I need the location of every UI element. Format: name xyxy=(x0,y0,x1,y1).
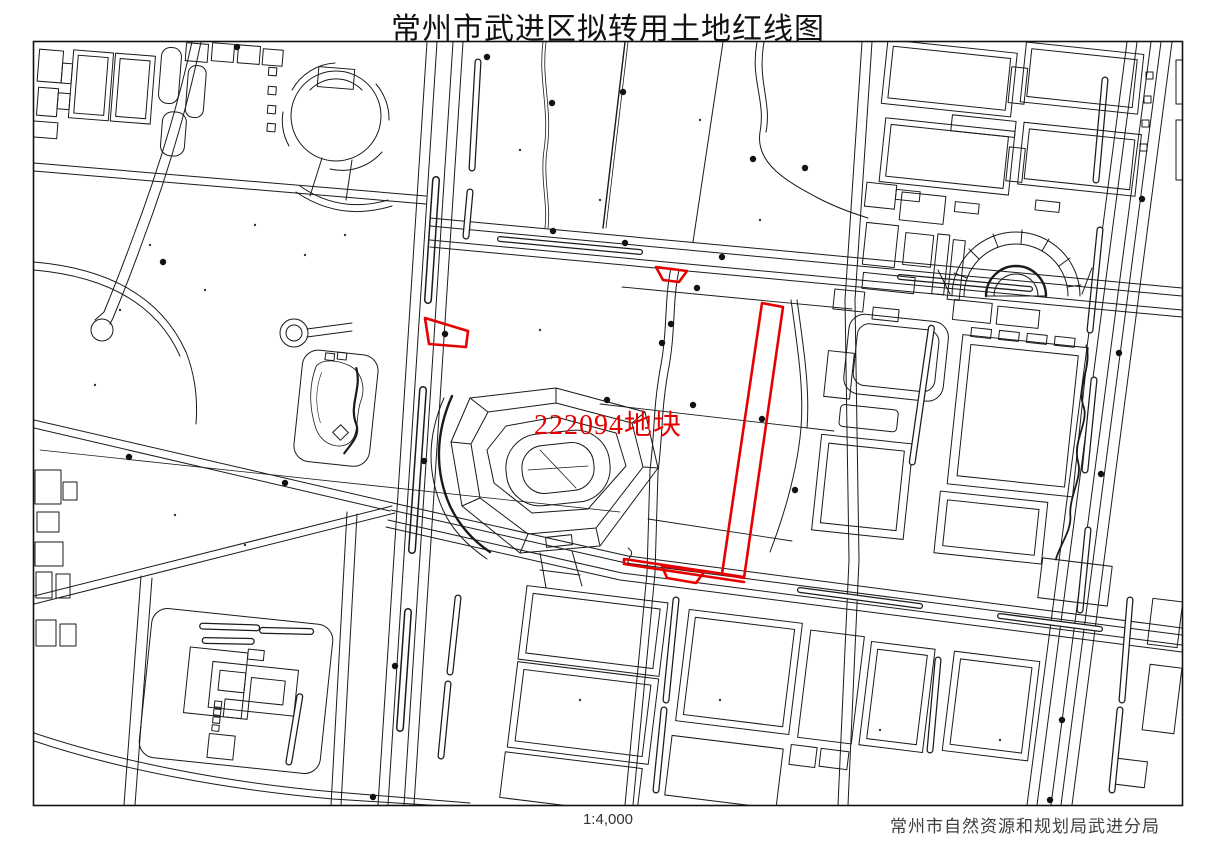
circular-plaza xyxy=(282,63,392,212)
map-agency: 常州市自然资源和规划局武进分局 xyxy=(890,812,1160,837)
land-redline-map-page: 常州市武进区拟转用土地红线图 xyxy=(0,0,1216,851)
pond xyxy=(292,349,379,468)
parcel-label: 222094地块 xyxy=(534,409,682,441)
buildings-southwest-corner xyxy=(36,620,76,646)
industrial-south xyxy=(441,558,1112,814)
culvert-marker-top xyxy=(656,267,687,282)
buildings-east-center xyxy=(809,287,1096,567)
buildings-northwest xyxy=(30,29,283,164)
buildings-southeast xyxy=(1112,60,1184,790)
school-complex xyxy=(138,607,335,775)
land-map-canvas: 222094地块 xyxy=(0,0,1216,851)
buildings-west-edge xyxy=(35,470,77,598)
parcel-boundary xyxy=(722,303,783,578)
park-west xyxy=(34,262,380,468)
